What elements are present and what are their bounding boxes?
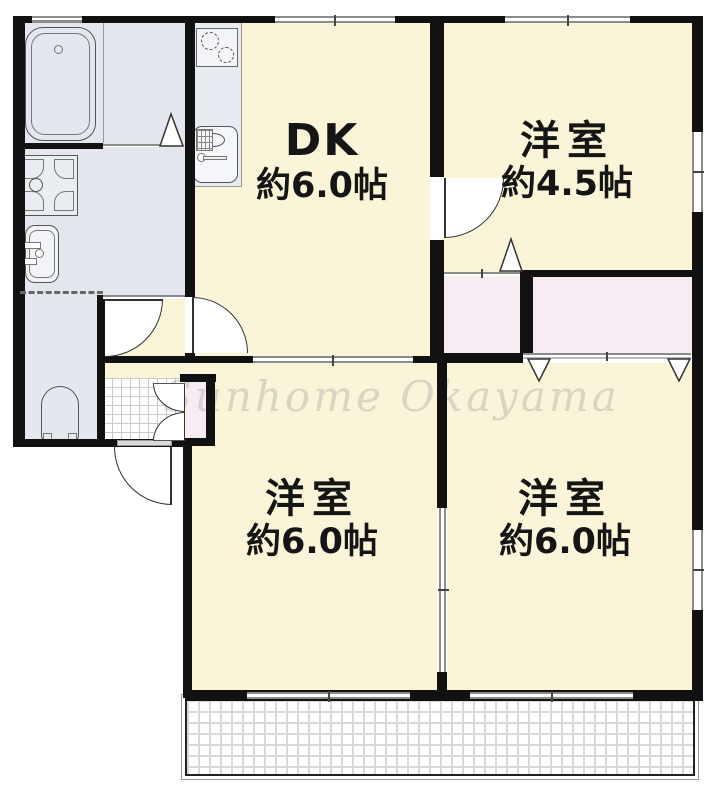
room-name: DK xyxy=(222,118,422,164)
wall-leftcol-dk-upper xyxy=(185,16,195,297)
washbasin-knob-icon xyxy=(35,249,44,258)
closet-b-opening xyxy=(523,353,691,359)
wall-closet-b-top xyxy=(520,270,703,277)
stove-burner-2-icon xyxy=(218,47,234,63)
closet-a-opening xyxy=(444,272,520,276)
washroom-toilet-divider xyxy=(20,291,103,294)
wall-room-6a-west xyxy=(183,443,192,698)
bathroom-partition-line xyxy=(103,23,104,143)
west-room-45-door-opening xyxy=(430,177,444,239)
wall-left xyxy=(13,16,25,447)
room-label-west-45: 洋室 約4.5帖 xyxy=(467,120,667,204)
room-name: 洋室 xyxy=(467,120,667,162)
wall-hall-south xyxy=(97,356,253,363)
wall-closet-divider xyxy=(520,277,533,357)
window-dk-north xyxy=(275,16,395,23)
room-size: 約6.0帖 xyxy=(465,523,665,562)
gas-stove xyxy=(196,28,238,67)
closet-a-floor xyxy=(444,277,520,353)
sliding-door-dk-6a xyxy=(253,356,413,363)
wall-toilet-east xyxy=(97,295,105,447)
window-6a-south xyxy=(247,692,410,699)
wall-dk-west45-lower xyxy=(430,240,444,363)
room-name: 洋室 xyxy=(465,478,665,520)
balcony xyxy=(185,698,695,776)
entry-door-swing xyxy=(114,447,172,505)
watermark-text: Sunhome Okayama xyxy=(163,372,620,421)
room-label-dk: DK 約6.0帖 xyxy=(222,118,422,206)
sliding-door-6a-6b xyxy=(439,508,446,672)
room-label-west-6a: 洋室 約6.0帖 xyxy=(212,478,412,562)
wall-dk-west45-upper xyxy=(430,16,444,177)
stove-burner-1-icon xyxy=(201,32,219,50)
room-size: 約4.5帖 xyxy=(467,165,667,204)
bathroom-door-line xyxy=(103,144,161,147)
toilet xyxy=(41,386,79,440)
bathtub-drain-icon xyxy=(54,45,63,54)
window-bathroom-louver xyxy=(32,16,82,23)
window-45-east xyxy=(692,132,703,212)
room-name: 洋室 xyxy=(212,478,412,520)
room-label-west-6b: 洋室 約6.0帖 xyxy=(465,478,665,562)
window-6b-east xyxy=(692,530,703,610)
floor-plan: Sunhome Okayama xyxy=(0,0,715,800)
sink-drain-grate xyxy=(196,129,213,151)
pan-corner-br xyxy=(54,191,74,211)
wall-shoe-closet-right xyxy=(206,378,215,446)
closet-b-floor xyxy=(533,277,692,354)
room-size: 約6.0帖 xyxy=(222,167,422,206)
wall-bath-washroom xyxy=(18,143,103,149)
pan-drain-icon xyxy=(29,178,43,192)
room-size: 約6.0帖 xyxy=(212,523,412,562)
wall-rooms-divider-upper xyxy=(437,358,447,508)
window-6b-south xyxy=(470,692,633,699)
wall-rooms-divider-lower xyxy=(437,672,447,701)
window-45-north xyxy=(505,16,630,23)
